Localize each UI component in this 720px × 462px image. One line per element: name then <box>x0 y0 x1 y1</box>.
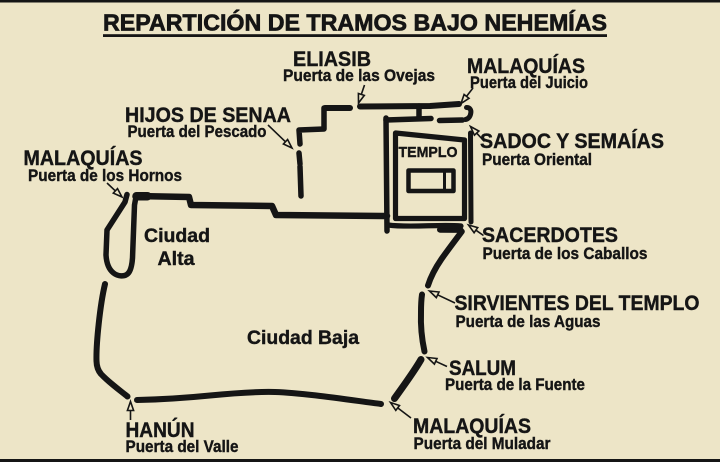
svg-text:Puerta del Juicio: Puerta del Juicio <box>470 73 588 92</box>
svg-text:Puerta del Muladar: Puerta del Muladar <box>414 434 551 453</box>
svg-text:Puerta del Valle: Puerta del Valle <box>126 437 239 456</box>
svg-text:Ciudad Baja: Ciudad Baja <box>247 328 359 349</box>
svg-text:Ciudad: Ciudad <box>144 226 210 247</box>
svg-text:Puerta del Pescado: Puerta del Pescado <box>128 122 267 141</box>
svg-text:REPARTICIÓN DE TRAMOS BAJO NEH: REPARTICIÓN DE TRAMOS BAJO NEHEMÍAS <box>103 9 607 36</box>
svg-text:Puerta de los Caballos: Puerta de los Caballos <box>483 244 648 263</box>
svg-text:TEMPLO: TEMPLO <box>399 144 458 161</box>
svg-text:Puerta de las Aguas: Puerta de las Aguas <box>456 312 601 331</box>
svg-text:Puerta Oriental: Puerta Oriental <box>482 150 592 169</box>
svg-text:Puerta de la Fuente: Puerta de la Fuente <box>445 375 585 394</box>
svg-text:Puerta de los Hornos: Puerta de los Hornos <box>28 166 182 185</box>
svg-text:Alta: Alta <box>158 249 195 270</box>
svg-text:Puerta de las Ovejas: Puerta de las Ovejas <box>283 66 435 85</box>
